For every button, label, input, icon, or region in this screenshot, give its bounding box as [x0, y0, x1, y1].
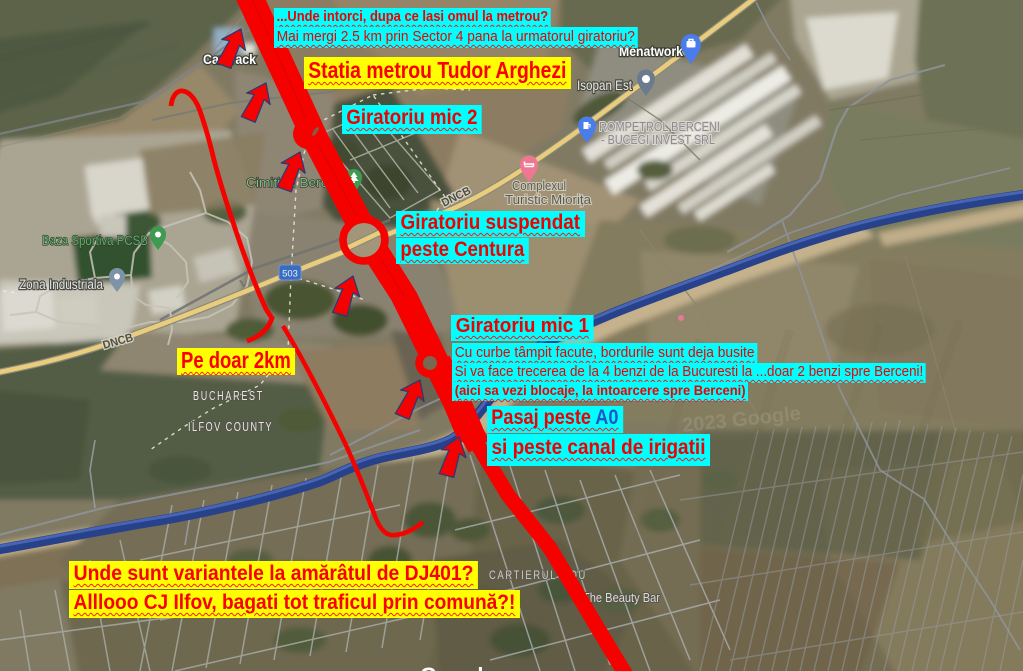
- svg-text:- BUCEGI INVEST SRL: - BUCEGI INVEST SRL: [601, 133, 715, 147]
- svg-text:Turistic Miorița: Turistic Miorița: [505, 193, 591, 207]
- svg-text:ROMPETROL BERCENI: ROMPETROL BERCENI: [599, 120, 720, 134]
- svg-text:The Beauty Bar: The Beauty Bar: [583, 591, 660, 605]
- svg-text:BUCHAREST: BUCHAREST: [193, 388, 264, 403]
- svg-text:ILFOV COUNTY: ILFOV COUNTY: [188, 419, 273, 434]
- svg-text:503: 503: [282, 269, 298, 280]
- svg-text:Isopan Est: Isopan Est: [577, 78, 632, 93]
- svg-text:Baza Sportiva PCSB: Baza Sportiva PCSB: [42, 233, 148, 248]
- svg-text:Google: Google: [420, 663, 496, 671]
- svg-text:Zona Industriala: Zona Industriala: [19, 277, 103, 292]
- svg-text:Complexul: Complexul: [512, 179, 566, 193]
